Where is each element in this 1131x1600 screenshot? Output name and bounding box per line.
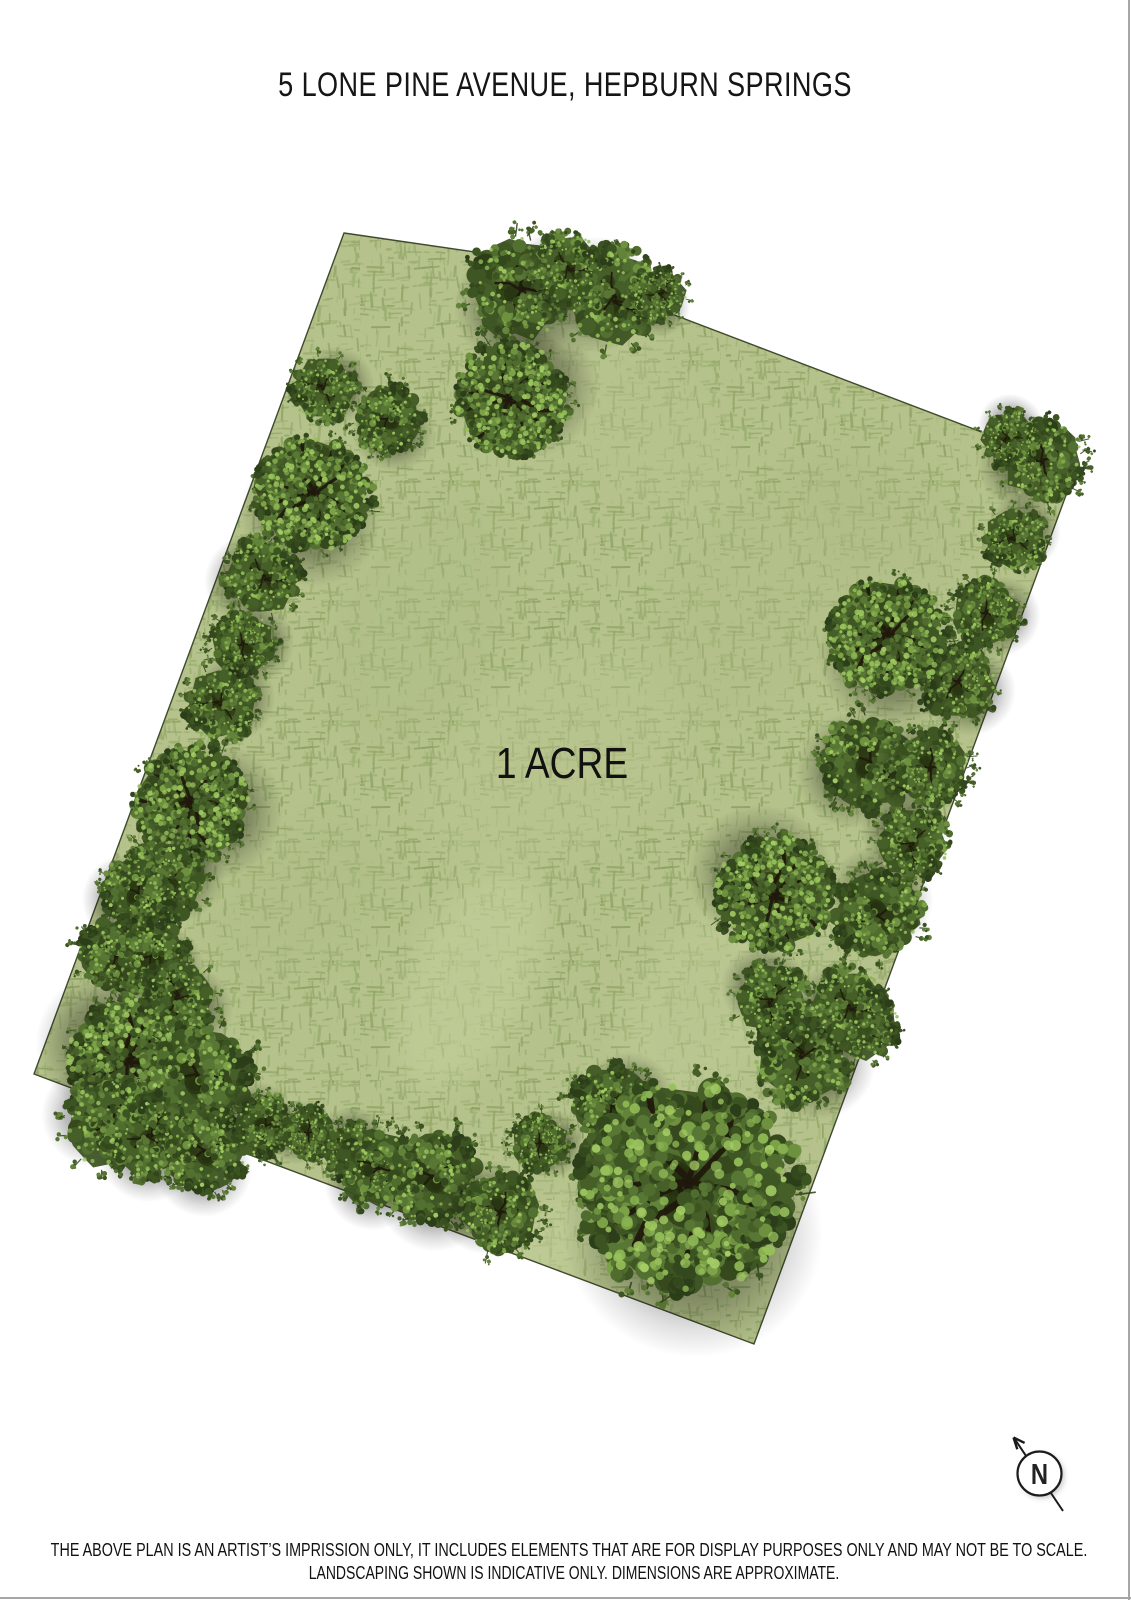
svg-text:1 ACRE: 1 ACRE bbox=[496, 738, 628, 787]
svg-text:N: N bbox=[1031, 1458, 1048, 1491]
